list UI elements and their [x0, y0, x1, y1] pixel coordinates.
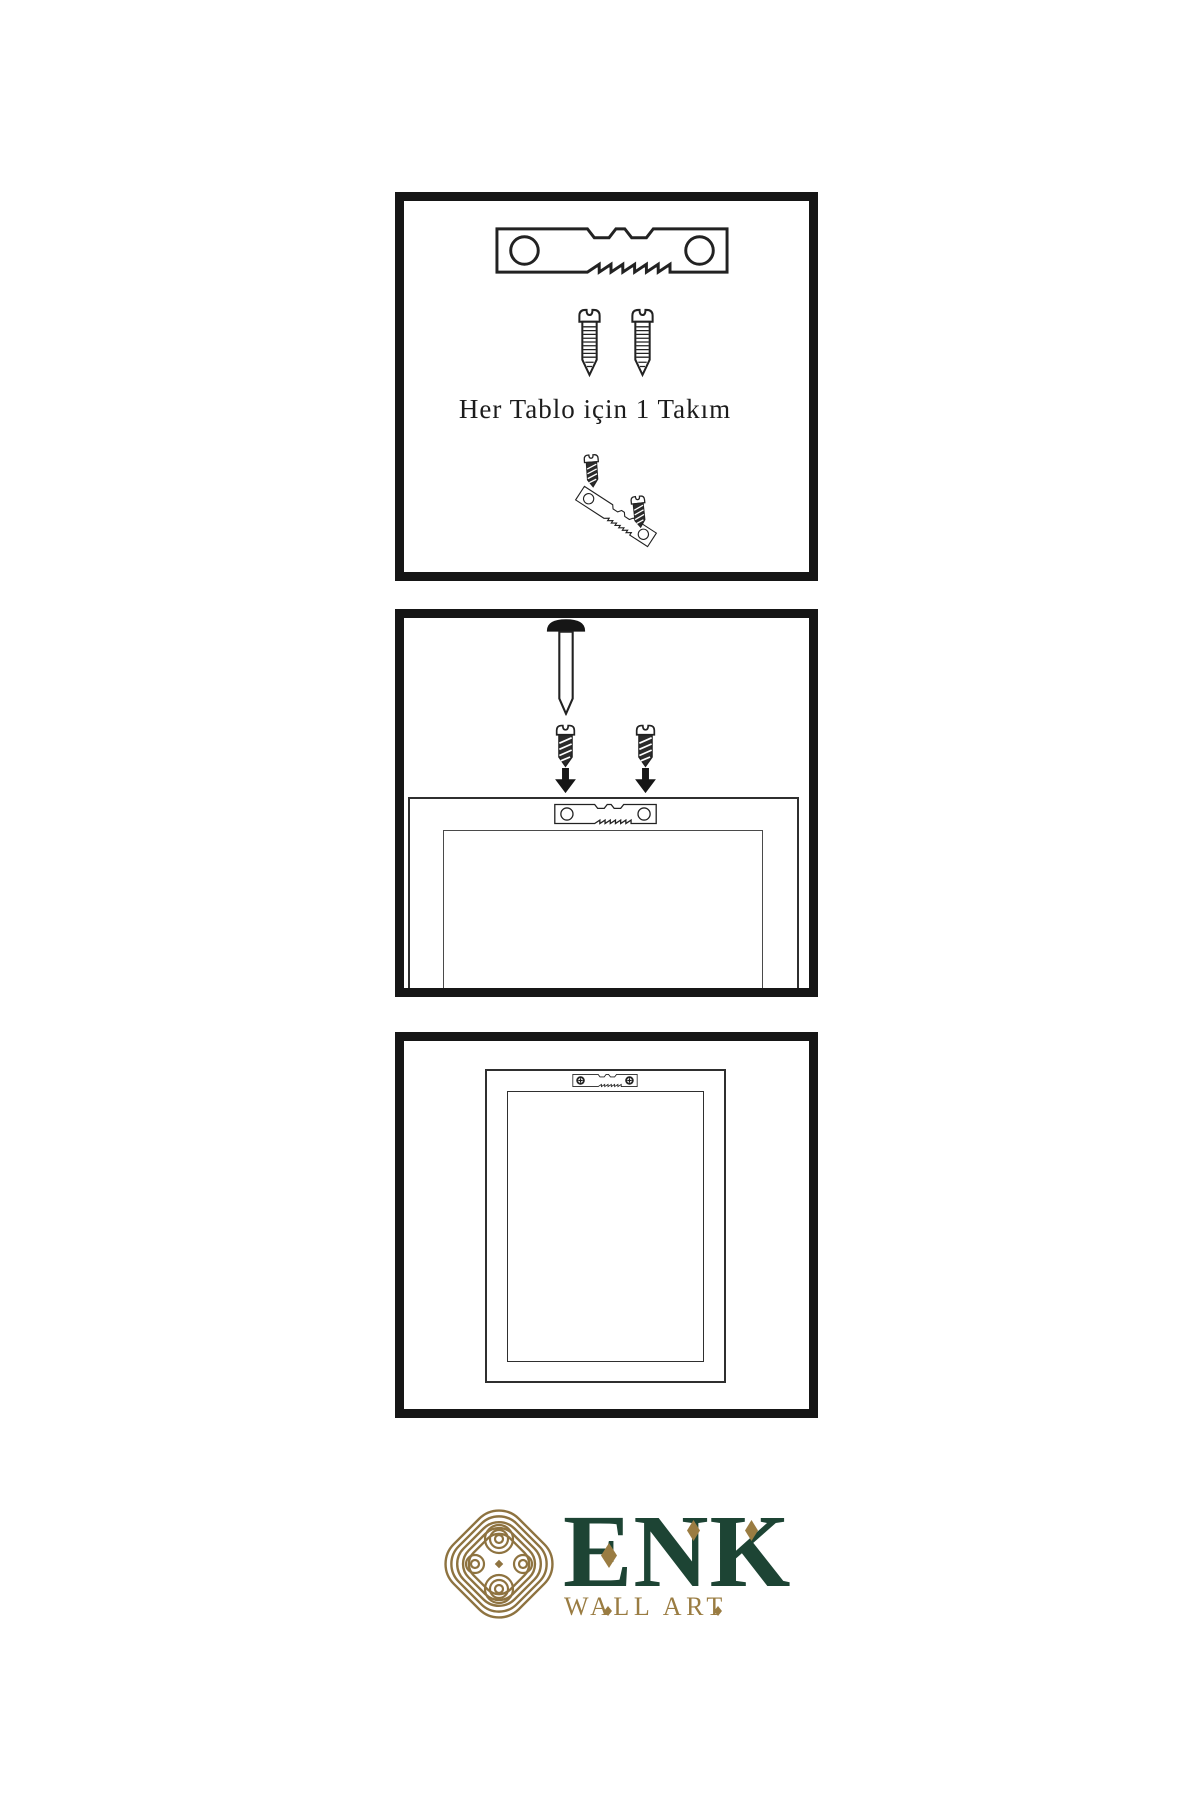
knot-icon	[437, 1497, 561, 1631]
brand-tagline: WALL ART	[564, 1594, 727, 1620]
arrow-down-icon	[634, 768, 657, 794]
screw-icon	[634, 722, 657, 769]
step-2-panel	[395, 609, 818, 997]
screw-icon	[576, 302, 603, 382]
wall-nail-icon	[545, 617, 587, 717]
screw-icon	[629, 302, 656, 382]
picture-canvas-outline	[507, 1091, 704, 1362]
brand-name: ENK	[563, 1500, 791, 1604]
instruction-sheet: Her Tablo için 1 Takım	[0, 0, 1200, 1800]
arrow-down-icon	[554, 768, 577, 794]
step-1-panel: Her Tablo için 1 Takım	[395, 192, 818, 581]
screw-icon	[628, 493, 650, 530]
step-3-panel	[395, 1032, 818, 1418]
sawtooth-hanger-icon	[553, 801, 658, 827]
step-1-caption: Her Tablo için 1 Takım	[445, 394, 745, 425]
frame-back-inner-outline	[443, 830, 763, 997]
screw-icon	[554, 722, 577, 769]
sawtooth-hanger-icon	[494, 221, 730, 280]
installed-sawtooth-hanger-icon	[572, 1071, 638, 1090]
